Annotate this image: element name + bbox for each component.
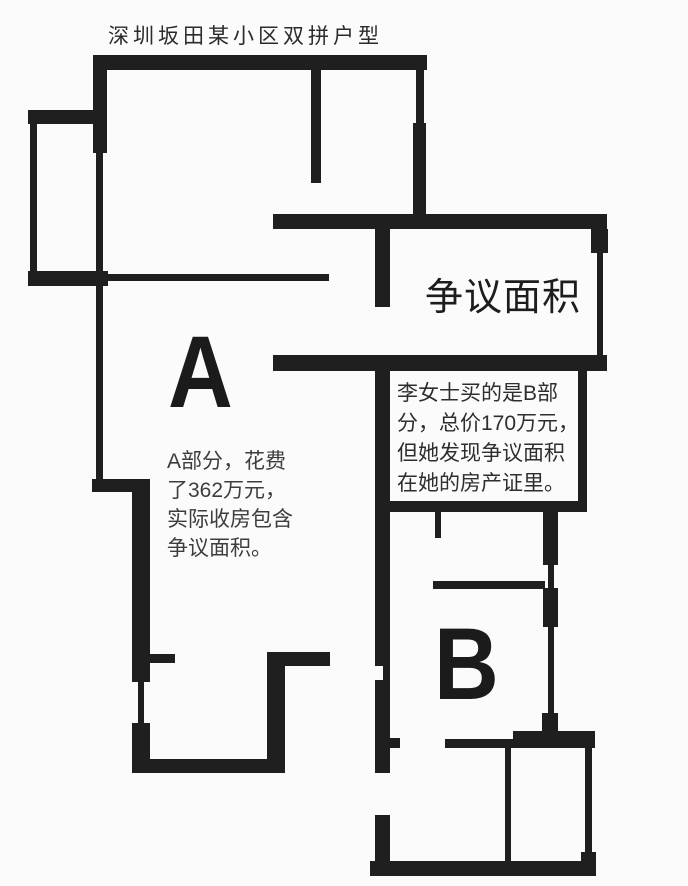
unit-a-note-line: 实际收房包含 (167, 505, 293, 534)
unit-b-label: B (434, 613, 499, 715)
floorplan-canvas: 深圳坂田某小区双拼户型 A 争议面积 A部分，花费 了362万元， 实际收房包含… (0, 0, 688, 886)
disputed-area-label: 争议面积 (425, 266, 581, 321)
unit-a-note: A部分，花费 了362万元， 实际收房包含 争议面积。 (167, 447, 293, 563)
unit-a-label: A (168, 321, 233, 423)
unit-b-note-line: 分，总价170万元， (397, 409, 579, 439)
unit-a-note-line: 了362万元， (167, 476, 293, 505)
unit-b-note: 李女士买的是B部 分，总价170万元， 但她发现争议面积 在她的房产证里。 (397, 379, 579, 499)
unit-a-note-line: A部分，花费 (167, 447, 293, 476)
unit-b-note-line: 在她的房产证里。 (397, 469, 579, 499)
unit-b-note-line: 李女士买的是B部 (397, 379, 579, 409)
unit-b-note-line: 但她发现争议面积 (397, 439, 579, 469)
floorplan-walls (0, 0, 688, 886)
unit-a-note-line: 争议面积。 (167, 534, 293, 563)
plan-title: 深圳坂田某小区双拼户型 (108, 20, 383, 50)
